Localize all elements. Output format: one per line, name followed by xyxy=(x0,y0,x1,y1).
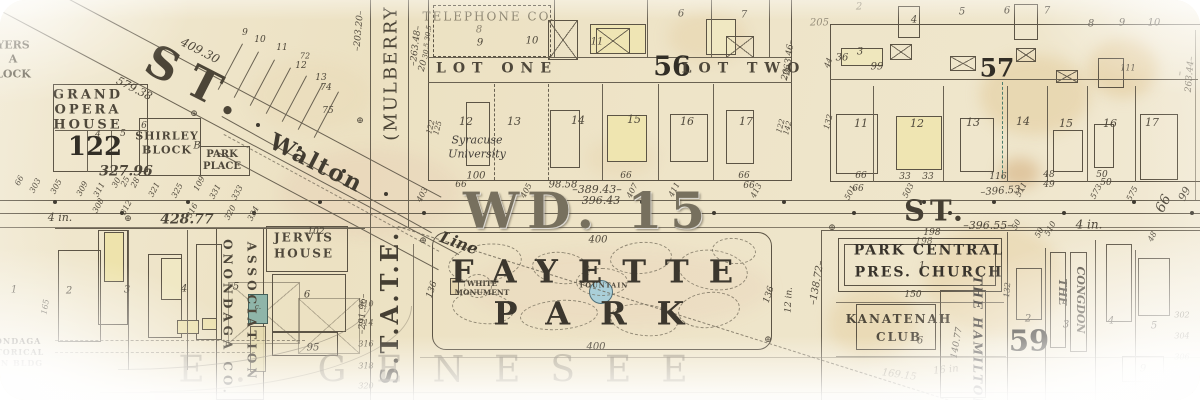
lot-line xyxy=(1007,232,1008,400)
lot-number-label: 4 xyxy=(911,16,917,27)
lot-number-label: 9 xyxy=(242,29,248,39)
measurement-label: 400 xyxy=(588,236,607,247)
map-frame: ST.Walton(MULBERRYS.T.A.T.E.WD. 15ST.E. … xyxy=(0,0,1200,400)
lot-number-label: 5 xyxy=(233,283,239,294)
historical-bldg-label: ONONDAGA HISTORICAL ASS'N BLDG xyxy=(0,336,44,368)
lot-number-label: 12 xyxy=(295,62,306,72)
lot-line xyxy=(1135,250,1136,400)
alley-dashed xyxy=(55,340,305,341)
house-number-label: 310 xyxy=(358,301,373,310)
lot-number-label: 74 xyxy=(320,84,331,94)
block-59-number: 59 xyxy=(1009,325,1049,356)
house-number-label: 311 xyxy=(93,181,108,199)
lot-line xyxy=(1087,86,1088,182)
lot-number-label: 9 xyxy=(477,39,483,50)
lot-number-label: 6 xyxy=(917,337,923,348)
house-number-label: 321 xyxy=(148,181,163,199)
measurement-label: 66 xyxy=(455,181,466,191)
utility-pole-dot xyxy=(1062,211,1066,215)
hamilton-label: THE HAMILTON xyxy=(971,276,984,400)
measurement-label: 116 xyxy=(989,173,1006,183)
lot-number-label: 10 xyxy=(526,37,539,48)
sanborn-map-canvas: ST.Walton(MULBERRYS.T.A.T.E.WD. 15ST.E. … xyxy=(0,0,1200,400)
survey-marker: ⊕ xyxy=(190,110,198,120)
utility-pole-dot xyxy=(384,192,388,196)
utility-pole-dot xyxy=(782,200,786,204)
utility-pole-dot xyxy=(256,123,260,127)
jervis-house-label: JERVIS HOUSE xyxy=(274,230,334,261)
lot-number-label: 4 xyxy=(181,285,187,296)
lot-line xyxy=(128,230,129,370)
onondaga-co-label: ONONDAGA CO. xyxy=(221,239,234,397)
lot-number-label: 17 xyxy=(739,116,753,128)
survey-marker: ⊕ xyxy=(828,224,836,234)
lot-number-label: 16 xyxy=(1103,118,1117,130)
lot-number-label: 11 xyxy=(591,38,604,49)
measurement-label: 12 in. xyxy=(784,287,795,313)
lot-number-label: 6 xyxy=(141,122,147,132)
house-number-label: 66 xyxy=(14,174,26,187)
kanatenah-club-label: KANATENAH CLUB xyxy=(846,310,953,346)
lot-number-label: 7 xyxy=(1044,7,1050,18)
lot-line xyxy=(769,0,770,57)
house-number-label: 314 xyxy=(358,320,373,329)
lot-number-label: 10 xyxy=(1148,19,1161,30)
lot-line xyxy=(1135,86,1136,182)
lot-number-label: 12 xyxy=(459,116,473,128)
survey-marker: ⊕ xyxy=(124,215,132,225)
measurement-label: –396.55– xyxy=(963,220,1013,232)
block-56-banner-line xyxy=(428,57,792,58)
myers-block-label: YERS A LOCK xyxy=(0,39,31,82)
lot-number-label: B xyxy=(193,142,200,153)
fayette-st-label: ST. xyxy=(904,195,968,226)
lot-number-label: 15 xyxy=(627,114,641,126)
measurement-label: 396.43 xyxy=(582,195,621,207)
lot-number-label: 7 xyxy=(741,11,747,22)
lot-number-label: 1 xyxy=(11,286,17,297)
genesee-street-line xyxy=(100,392,1200,393)
building-outline xyxy=(1014,4,1038,40)
house-number-label: 318 xyxy=(358,363,373,372)
congdon-label-the: THE xyxy=(1056,279,1068,306)
measurement-label: 132 xyxy=(1003,282,1013,298)
map-layers: ST.Walton(MULBERRYS.T.A.T.E.WD. 15ST.E. … xyxy=(0,0,1200,400)
utility-pole-dot xyxy=(53,200,57,204)
house-number-label: 331 xyxy=(209,183,224,201)
measurement-label: 33 xyxy=(922,173,933,183)
measurement-label: 198 xyxy=(915,238,932,248)
block-57-number: 57 xyxy=(980,55,1015,82)
lot-number-label: 9 xyxy=(1140,365,1146,376)
house-number-label: 320 xyxy=(358,383,373,392)
lot-line xyxy=(602,84,603,180)
house-number-label: 305 xyxy=(50,178,65,196)
lot-line xyxy=(658,84,659,180)
congdon-label-congdon: CONGDON xyxy=(1074,267,1086,334)
lot-line xyxy=(494,84,495,180)
building-outline xyxy=(1053,130,1083,172)
skylight-building xyxy=(548,20,578,60)
measurement-label: 95 xyxy=(307,344,320,355)
skylight-building xyxy=(890,44,912,60)
lot-number-label: 8 xyxy=(476,26,482,37)
measurement-label: 150 xyxy=(904,291,921,301)
lot-number-label: 3 xyxy=(1063,321,1069,332)
lot-number-label: 2 xyxy=(66,287,72,298)
house-number-label: 109 xyxy=(193,175,208,193)
lot-number-label: 11 xyxy=(854,118,868,130)
lot-number-label: c. xyxy=(255,304,261,312)
measurement-label: 99 xyxy=(871,63,884,74)
measurement-label: 100 xyxy=(466,172,485,183)
lot-number-label: 2 xyxy=(1025,315,1031,326)
building-outline xyxy=(1094,124,1114,168)
lot-number-label: 13 xyxy=(966,117,980,129)
utility-pole-dot xyxy=(318,200,322,204)
lot-number-label: 72 xyxy=(300,53,310,62)
park-place-label: PARK PLACE xyxy=(203,149,241,173)
measurement-label: 4 in. xyxy=(1076,219,1103,232)
measurement-label: 111 xyxy=(1120,65,1135,74)
shirley-block-label: SHIRLEY BLOCK xyxy=(135,129,199,157)
house-number-label: 304 xyxy=(1174,333,1189,342)
lot-number-label: 16 xyxy=(680,116,694,128)
lot-number-label: 12 xyxy=(910,118,924,130)
building-outline xyxy=(1106,244,1132,322)
lot-number-label: 6 xyxy=(678,10,684,21)
measurement-label: 102 xyxy=(307,228,324,238)
measurement-label: –263.44– xyxy=(1175,55,1198,93)
lot-number-label: 13 xyxy=(507,116,521,128)
house-number-label: 306 xyxy=(1174,354,1189,363)
block-56-banner-line xyxy=(428,82,792,83)
lot-number-label: 6 xyxy=(304,291,310,302)
lot-number-label: 17 xyxy=(1145,117,1159,129)
lot-number-label: 4 xyxy=(95,131,101,141)
house-number-label: 510 xyxy=(1044,220,1059,238)
house-number-label: 48 xyxy=(1147,230,1159,243)
lot-one-label: LOT ONE xyxy=(436,61,558,76)
lot-line xyxy=(943,86,944,182)
lot-line-dashed-green xyxy=(1002,82,1003,178)
utility-pole-dot xyxy=(852,211,856,215)
lot-number-label: 11 xyxy=(276,44,287,54)
mulberry-street-line xyxy=(408,0,409,228)
house-number-label: 309 xyxy=(76,180,91,198)
lot-number-label: 5 xyxy=(120,130,126,140)
syracuse-university-label: Syracuse University xyxy=(448,133,506,161)
measurement-label: 66 xyxy=(620,172,631,182)
lot-line xyxy=(711,0,712,57)
skylight-building xyxy=(1056,70,1078,83)
association-label: ASSOCIATION xyxy=(245,242,258,383)
measurement-label: 66 xyxy=(855,172,866,182)
house-number-label: 316 xyxy=(358,341,373,350)
skylight-building xyxy=(726,36,754,58)
measurement-label: 165 xyxy=(40,299,51,316)
building-outline xyxy=(1138,258,1170,316)
white-monument-label: WHITE MONUMENT xyxy=(455,279,510,297)
lot-number-label: 5 xyxy=(959,8,965,19)
mulberry-street-label: (MULBERRY xyxy=(381,5,400,140)
lot-line xyxy=(713,84,714,180)
lot-line xyxy=(1047,86,1048,182)
lot-number-label: 3 xyxy=(124,286,130,297)
house-number-label: 302 xyxy=(1174,312,1189,321)
measurement-label: 136 xyxy=(763,285,778,304)
lot-number-label: 3 xyxy=(857,48,863,59)
lot-number-label: 10 xyxy=(254,36,265,46)
measurement-label: 4 in. xyxy=(48,212,73,224)
lot-number-label: 14 xyxy=(571,115,585,127)
survey-marker: ⊕ xyxy=(356,117,364,127)
lot-number-label: 8 xyxy=(1088,20,1094,31)
genesee-street-label: E. GENESEE xyxy=(178,352,717,391)
lot-number-label: 1 xyxy=(919,262,925,273)
utility-pole-dot xyxy=(1190,211,1194,215)
lot-line xyxy=(873,86,874,182)
skylight-building xyxy=(950,56,976,71)
lot-number-label: 6 xyxy=(1004,7,1010,18)
fountain-label: FOUNTAIN xyxy=(580,282,628,289)
right-edge-line xyxy=(1195,30,1196,200)
measurement-label: 98.58 xyxy=(549,181,578,192)
house-number-label: 66 xyxy=(1153,193,1175,216)
lot-number-label: 5 xyxy=(1151,322,1157,333)
measurement-label: –138.72– xyxy=(809,260,827,306)
survey-marker: ⊕ xyxy=(419,237,427,247)
house-number-label: 325 xyxy=(171,182,186,200)
house-number-label: 573 xyxy=(1090,183,1105,201)
utility-pole-dot xyxy=(186,200,190,204)
frame-building xyxy=(161,258,182,300)
measurement-label: 49 xyxy=(1043,181,1054,191)
lot-line xyxy=(1007,86,1008,182)
measurement-label: 400 xyxy=(586,343,605,354)
frame-building xyxy=(104,232,124,282)
telephone-co-label: TELEPHONE CO. xyxy=(422,11,555,24)
lot-number-label: 9 xyxy=(1119,19,1125,30)
measurement-label: 205. xyxy=(810,19,832,30)
building-outline xyxy=(1016,268,1042,320)
block-59-edge xyxy=(821,230,822,400)
house-number-label: 303 xyxy=(29,177,44,195)
grand-opera-house-label: GRAND OPERA HOUSE xyxy=(53,89,123,134)
measurement-label: 169.15 xyxy=(881,368,917,384)
measurement-label: –203.20– xyxy=(353,10,366,51)
measurement-label: 142 xyxy=(782,120,794,136)
lot-number-label: 75 xyxy=(322,107,333,117)
utility-pole-dot xyxy=(422,211,426,215)
utility-pole-dot xyxy=(992,200,996,204)
lot-number-label: 15 xyxy=(1059,118,1073,130)
lot-line xyxy=(1095,240,1096,400)
building-outline xyxy=(58,250,101,342)
survey-marker: ⊕ xyxy=(764,336,772,346)
lot-number-label: 4 xyxy=(1108,317,1114,328)
lot-number-label: 2 xyxy=(856,3,862,14)
skylight-building xyxy=(1016,48,1036,62)
park-name-line2: PARK xyxy=(494,297,715,332)
lot-line xyxy=(647,0,648,57)
lot-line xyxy=(548,84,549,180)
measurement-label: 36 xyxy=(836,54,849,65)
lot-number-label: 14 xyxy=(1016,116,1030,128)
